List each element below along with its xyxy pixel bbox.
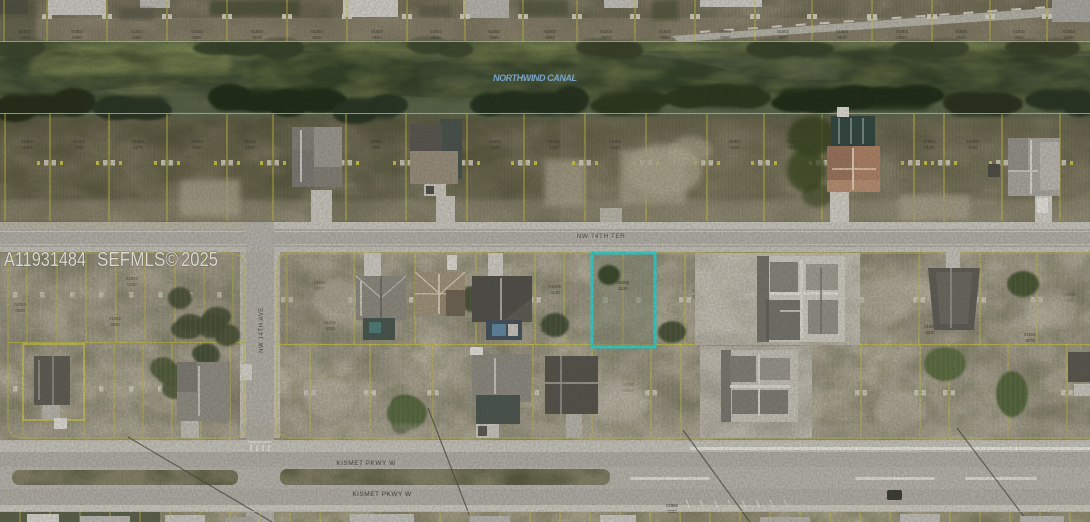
svg-text:2025: 2025 <box>181 249 218 271</box>
svg-text:A11931484: A11931484 <box>4 249 86 271</box>
svg-text:SEFMLS©: SEFMLS© <box>97 249 178 271</box>
